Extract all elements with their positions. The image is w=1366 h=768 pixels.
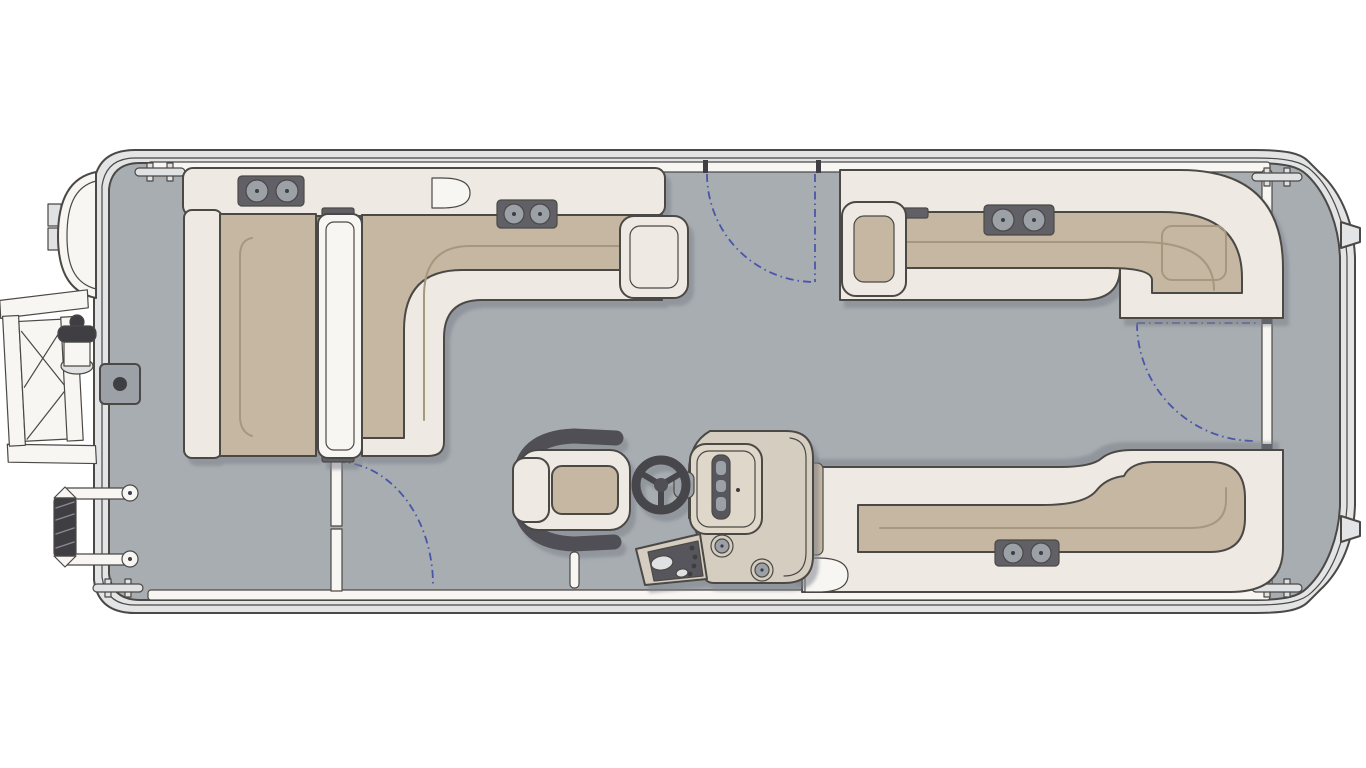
port-bow-chaise-lounge (184, 210, 316, 458)
cupholder-tray (238, 176, 304, 206)
cupholder-tray (984, 205, 1054, 235)
pontoon-floor-plan: Top-view pontoon boat deck floor plan wi… (0, 0, 1366, 768)
ladder-rail (0, 290, 89, 319)
gate-hinge-mark (703, 160, 708, 173)
chaise-cushion (220, 214, 316, 456)
armrest (842, 202, 906, 296)
cupholder-tray (497, 200, 557, 228)
bow-gate-panel (48, 172, 96, 298)
cupholder-tray (995, 540, 1059, 566)
floor-plan-drawing: Top-view pontoon boat deck floor plan wi… (0, 0, 1366, 768)
console-cupholder (711, 535, 733, 557)
captains-chair (513, 436, 630, 544)
rail-post (570, 552, 579, 588)
flip-backrest (318, 208, 362, 462)
stern-tab-lower (1341, 516, 1360, 542)
gate-leaf (331, 529, 342, 591)
chair-cushion (552, 466, 618, 514)
stern-starboard-l-lounge (840, 170, 1283, 318)
chaise-backrest (184, 210, 222, 458)
chair-backrest (513, 458, 549, 522)
pylon-cap (58, 326, 96, 342)
console-cupholder (751, 559, 773, 581)
deck-mount-socket (113, 377, 127, 391)
gate-hinge-mark (816, 160, 821, 173)
stern-port-bench (753, 450, 1283, 592)
armrest (620, 216, 688, 298)
console-dash (690, 444, 762, 534)
stern-tab-upper (1341, 222, 1360, 248)
starboard-bow-gate (331, 455, 342, 591)
gate-leaf (331, 455, 342, 526)
bench-end-cap (432, 178, 470, 208)
